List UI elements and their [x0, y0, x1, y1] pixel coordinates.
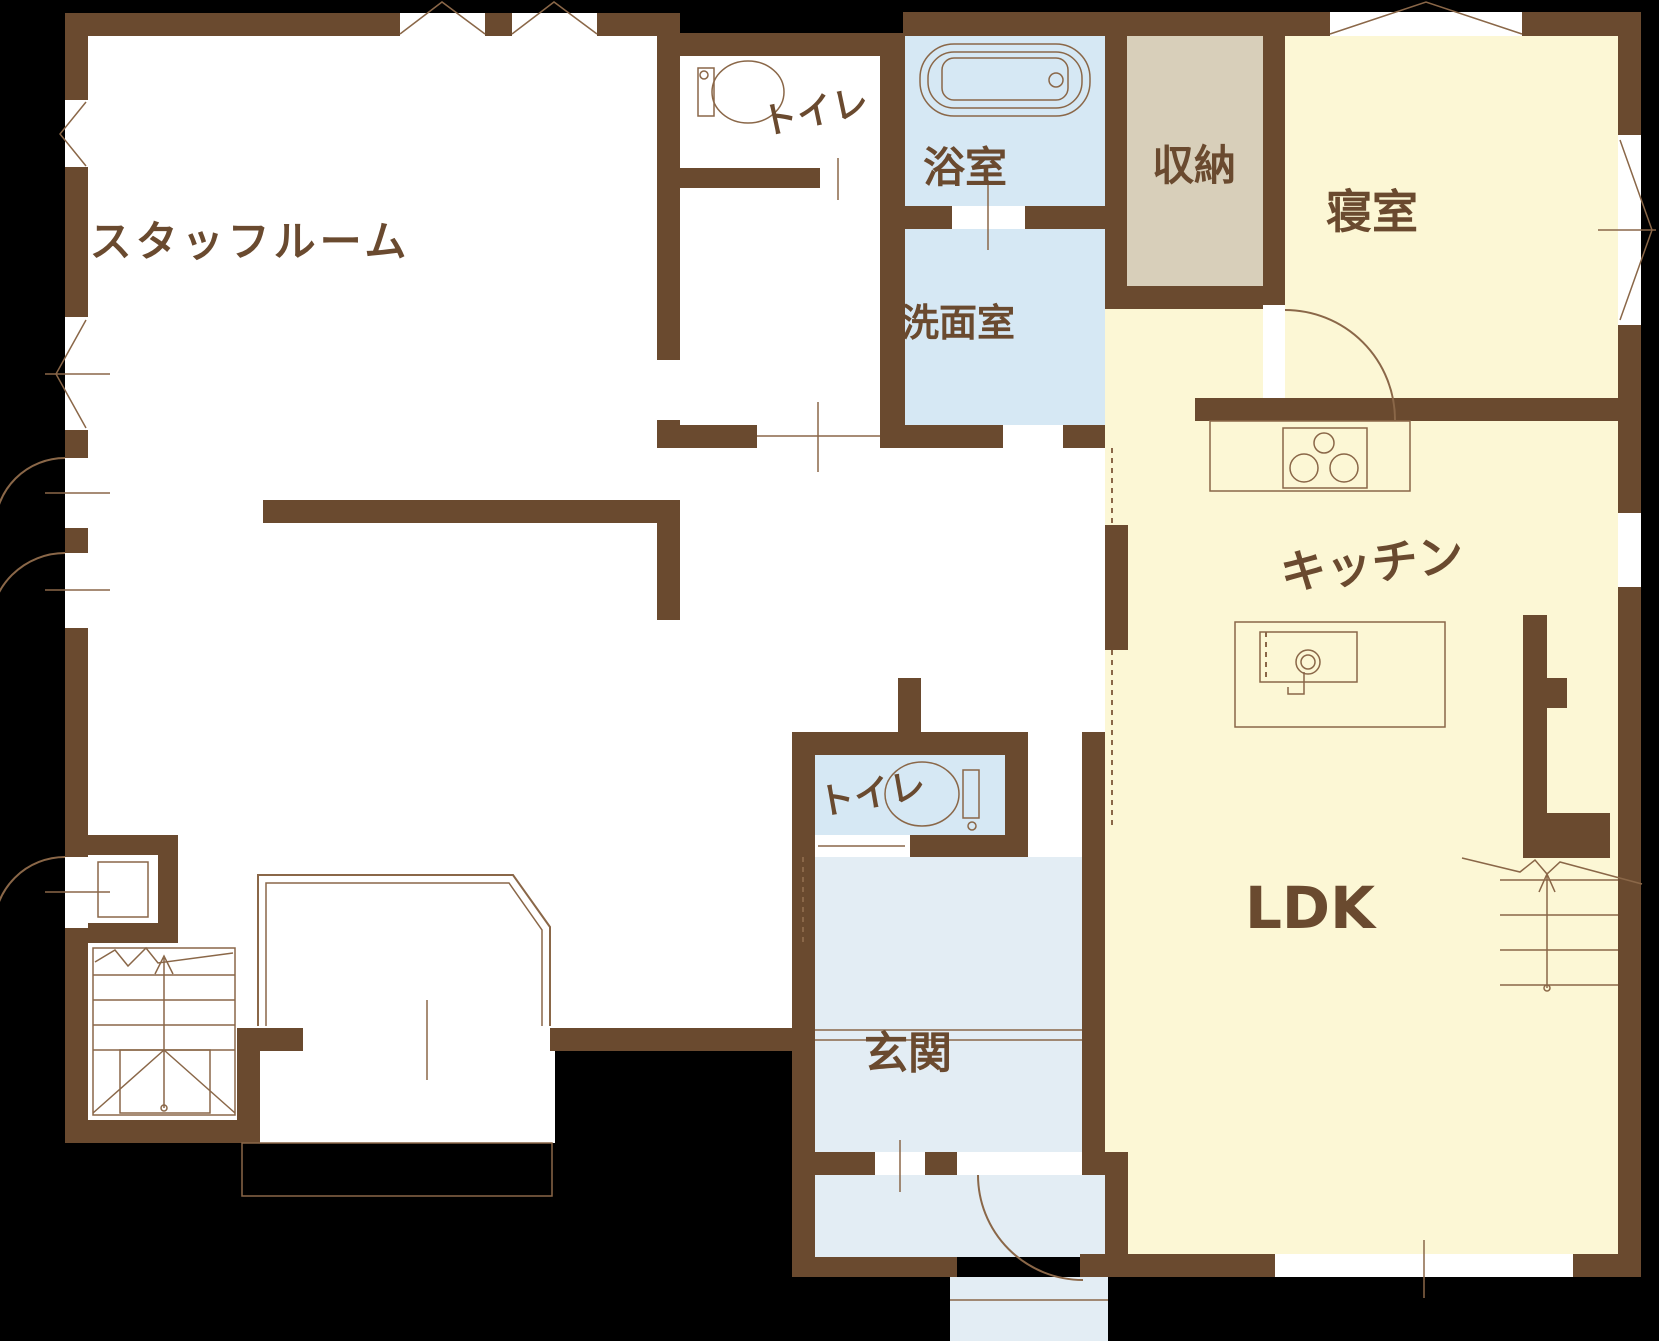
door-opening — [1263, 305, 1285, 398]
window-opening — [1618, 513, 1641, 587]
exterior-cutout — [65, 1143, 555, 1341]
wall-segment — [910, 835, 1028, 857]
wall-segment — [903, 12, 1641, 36]
room-label-bathroom: 浴室 — [923, 143, 1007, 192]
wall-segment — [657, 500, 680, 620]
wall-segment — [792, 1257, 957, 1277]
entrance-step-floor — [815, 1175, 1105, 1257]
wall-segment — [815, 1152, 875, 1175]
room-label-bedroom: 寝室 — [1326, 185, 1418, 239]
exterior-cutout — [555, 1051, 792, 1341]
floor-plan-drawing: スタッフルーム トイレ 浴室 洗面室 収納 寝室 キッチン LDK トイレ 玄関 — [0, 0, 1659, 1341]
door-opening — [1003, 425, 1063, 448]
room-label-storage: 収納 — [1152, 141, 1236, 190]
room-label-washroom: 洗面室 — [901, 301, 1015, 345]
wall-segment — [1105, 525, 1128, 650]
door-opening — [657, 360, 680, 420]
wall-segment — [792, 732, 815, 1257]
room-label-ldk: LDK — [1245, 874, 1377, 942]
wall-segment — [925, 1152, 957, 1175]
room-label-entrance: 玄関 — [864, 1028, 952, 1079]
porch-floor — [950, 1277, 1108, 1341]
closet-wall — [88, 923, 178, 943]
wall-segment — [680, 168, 820, 188]
wall-segment — [1547, 678, 1567, 708]
wall-segment — [1082, 732, 1105, 1152]
wall-segment — [792, 732, 1028, 755]
wall-segment — [1105, 1152, 1128, 1257]
wall-segment — [1105, 286, 1285, 309]
room-label-staff: スタッフルーム — [90, 217, 411, 266]
entrance-floor — [815, 857, 1082, 1152]
kitchen-floor — [1105, 309, 1285, 1254]
wall-segment — [1005, 732, 1028, 835]
wall-segment — [898, 678, 921, 732]
wall-segment — [263, 500, 680, 523]
door-opening — [957, 1152, 1082, 1175]
wall-segment — [65, 1120, 260, 1143]
floor-plan: スタッフルーム トイレ 浴室 洗面室 収納 寝室 キッチン LDK トイレ 玄関 — [0, 0, 1659, 1341]
wall-segment — [1195, 398, 1618, 421]
wall-segment — [1082, 1152, 1105, 1175]
window-opening — [65, 100, 88, 167]
wall-segment — [1523, 813, 1610, 858]
wall-segment — [657, 33, 903, 56]
wall-segment — [1105, 36, 1127, 286]
wall-segment — [880, 33, 905, 448]
